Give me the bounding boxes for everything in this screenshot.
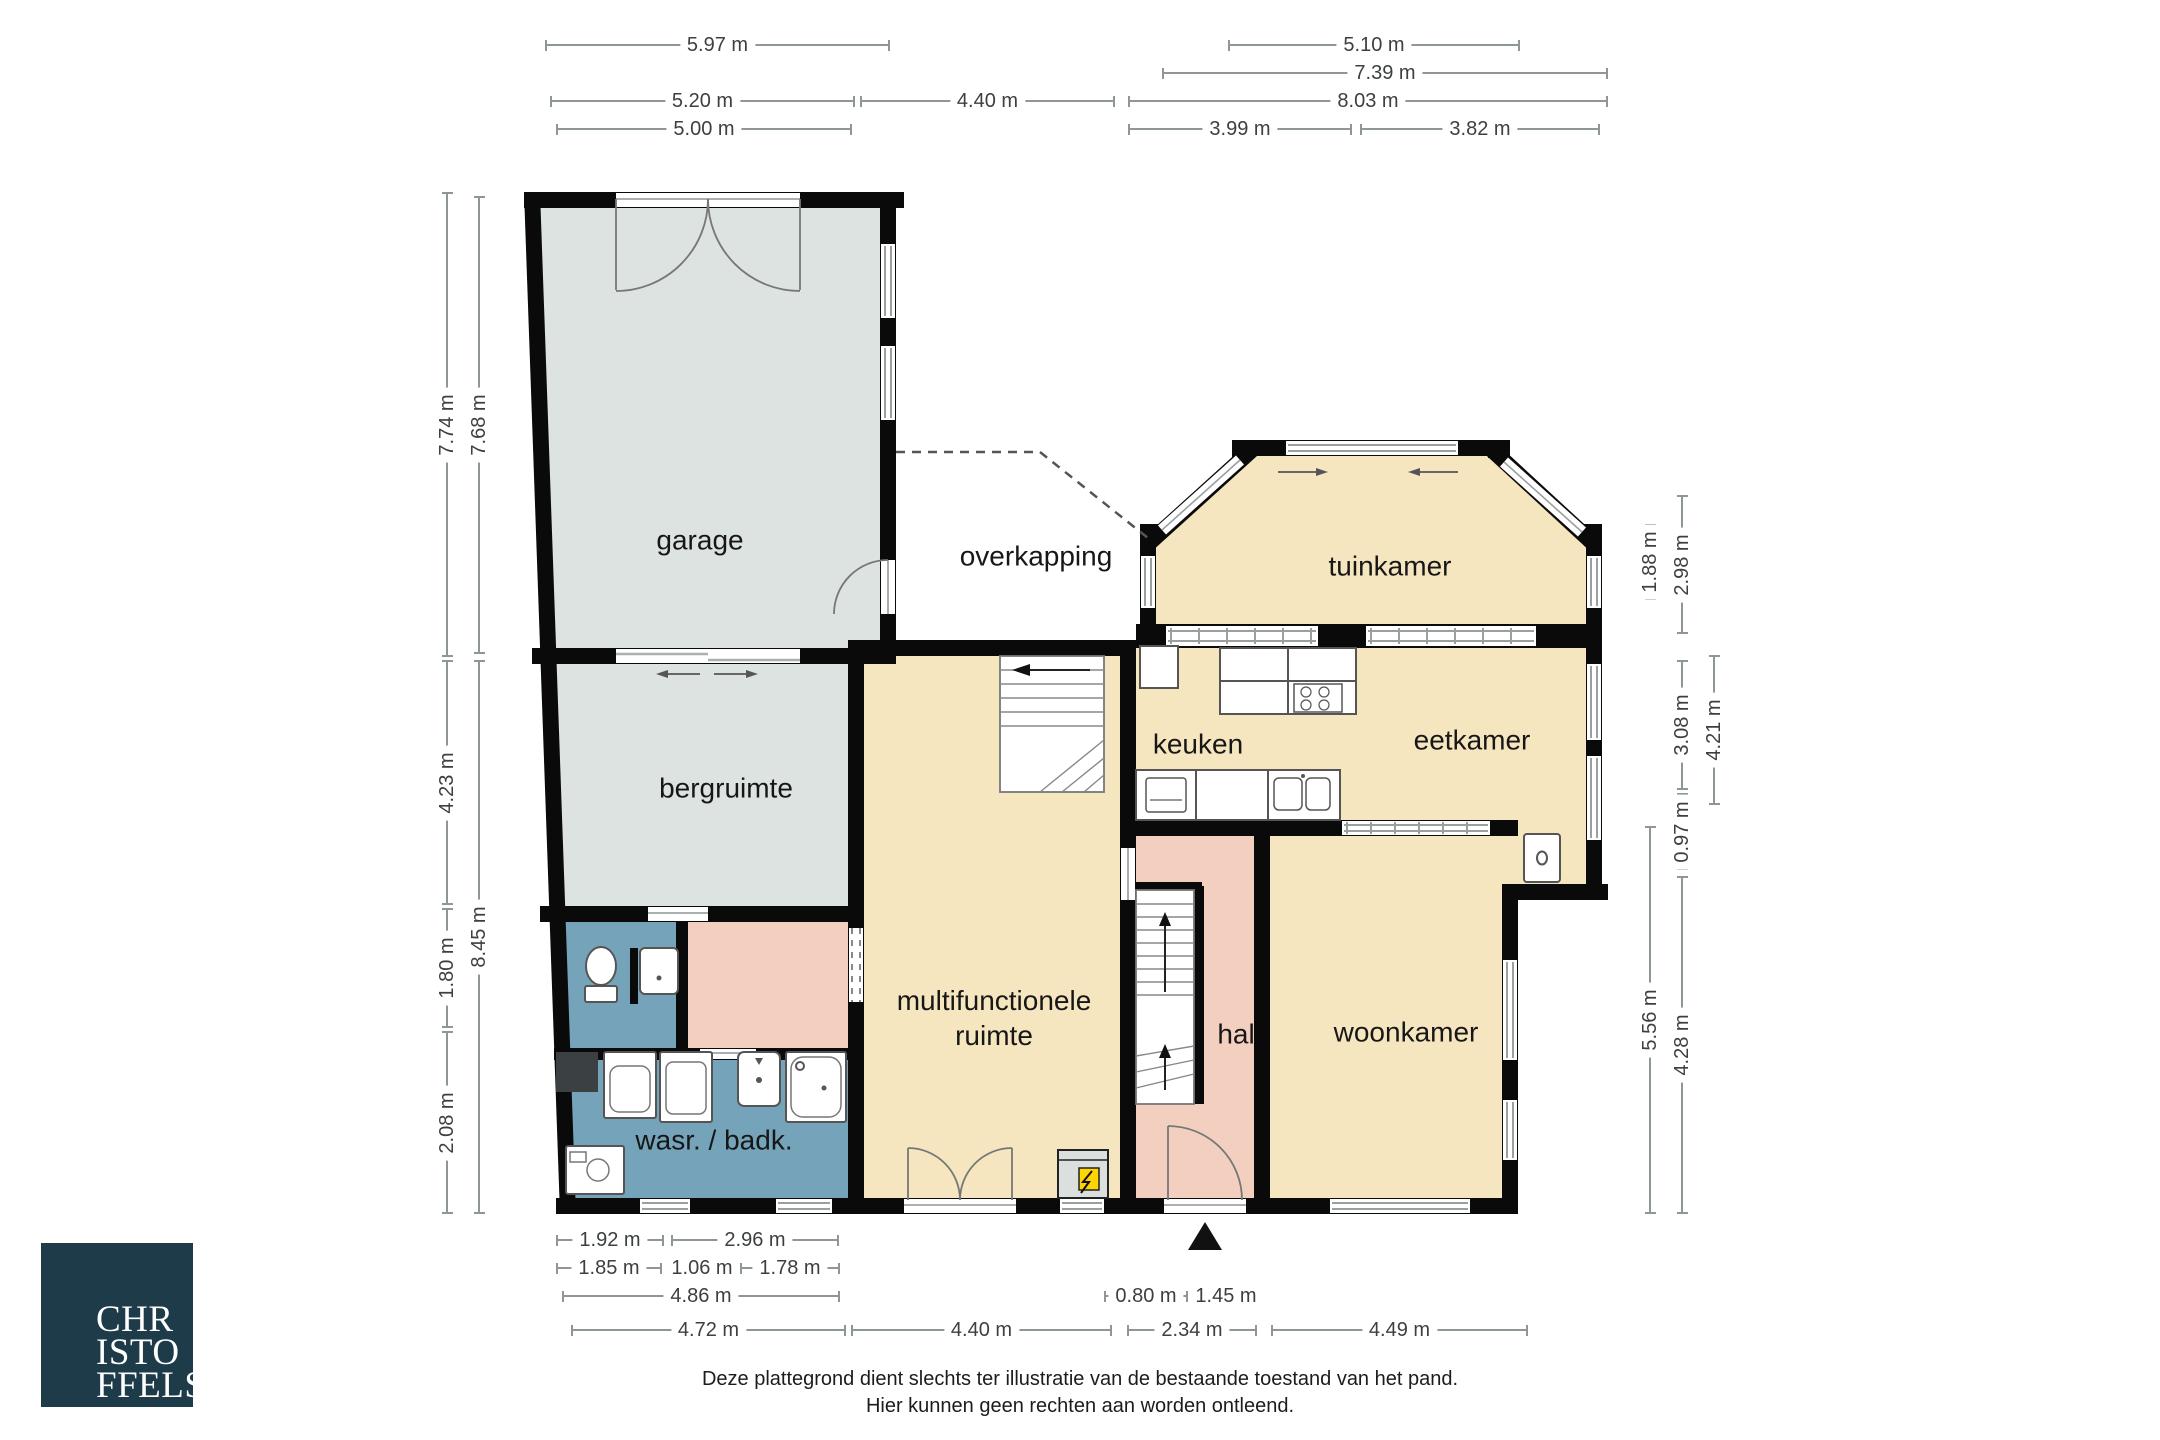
dimension-right: 3.08 m (1681, 660, 1683, 790)
dimension-bottom: 4.40 m (851, 1329, 1112, 1331)
laundry-sink-icon (566, 1146, 624, 1194)
dimension-label: 4.49 m (1362, 1319, 1437, 1341)
dimension-label: 0.97 m (1671, 794, 1693, 869)
dimension-label: 3.82 m (1442, 118, 1517, 140)
dimension-tick (562, 1291, 564, 1302)
utility-window (1060, 1199, 1104, 1213)
dimension-tick (838, 1263, 840, 1274)
dimension-tick (1518, 40, 1520, 51)
dimension-tick (1110, 1325, 1112, 1336)
dimension-label: 4.86 m (663, 1285, 738, 1307)
dimension-label: 4.21 m (1703, 692, 1725, 767)
dimension-top: 3.99 m (1128, 128, 1352, 130)
dimension-right: 4.21 m (1713, 655, 1715, 805)
dimension-tick (556, 1263, 558, 1274)
dimension-tick (1677, 660, 1688, 662)
dimension-label: 1.92 m (572, 1229, 647, 1251)
dimension-tick (1128, 96, 1130, 107)
dimension-top: 3.82 m (1360, 128, 1600, 130)
room-label-wasruimte-badkamer: wasr. / badk. (635, 1123, 792, 1158)
dimension-bottom: 0.80 m (1104, 1295, 1188, 1297)
dimension-left: 8.45 m (478, 660, 480, 1214)
dimension-tick (474, 660, 485, 662)
dimension-tick (442, 908, 453, 910)
dimension-label: 5.56 m (1639, 982, 1661, 1057)
living-room-window-east (1503, 960, 1517, 1060)
dimension-tick (888, 40, 890, 51)
dimension-tick (1645, 826, 1656, 828)
room-label-bergruimte: bergruimte (659, 771, 793, 806)
dimension-tick (474, 1212, 485, 1214)
disclaimer-line: Deze plattegrond dient slechts ter illus… (0, 1366, 2160, 1393)
floor-plan-drawing (0, 0, 2160, 1440)
dimension-label: 5.00 m (666, 118, 741, 140)
logo-line: FFELS (96, 1369, 205, 1402)
garden-room-window-right (1587, 556, 1601, 608)
multifunctional-hall-door (1121, 848, 1135, 900)
garage-window (881, 244, 895, 318)
dimension-label: 2.98 m (1671, 527, 1693, 602)
dimension-tick (442, 655, 453, 657)
dimension-tick (844, 1325, 846, 1336)
dimension-bottom: 2.96 m (671, 1239, 839, 1241)
dimension-tick (660, 1263, 662, 1274)
dimension-top: 7.39 m (1162, 72, 1608, 74)
dimension-tick (556, 124, 558, 135)
dimension-label: 5.20 m (665, 90, 740, 112)
dimension-top: 4.40 m (860, 100, 1115, 102)
dimension-tick (851, 1325, 853, 1336)
dimension-tick (853, 96, 855, 107)
dimension-label: 2.34 m (1154, 1319, 1229, 1341)
dimension-left: 4.23 m (446, 660, 448, 905)
dimension-top: 5.20 m (550, 100, 855, 102)
dimension-label: 8.45 m (468, 899, 490, 974)
toilet-icon (586, 947, 616, 985)
room-label-tuinkamer: tuinkamer (1329, 549, 1452, 584)
dimension-tick (671, 1235, 673, 1246)
dimension-tick (662, 1235, 664, 1246)
electricity-icon (1079, 1168, 1099, 1190)
dimension-bottom: 1.78 m (740, 1267, 840, 1269)
corridor-opening-dashed (849, 928, 863, 1002)
shower-icon (786, 1052, 846, 1122)
dimension-tick (1526, 1325, 1528, 1336)
dimension-right: 1.88 m (1649, 524, 1651, 600)
stairs-multifunctional-room (1000, 656, 1104, 792)
dimension-label: 7.74 m (436, 387, 458, 462)
stairs-hall (1136, 890, 1194, 1104)
entrance-arrow-icon (1188, 1222, 1222, 1250)
room-label-garage: garage (656, 523, 743, 558)
dimension-label: 7.68 m (468, 387, 490, 462)
dimension-label: 1.78 m (752, 1257, 827, 1279)
garden-room-window-top (1286, 441, 1458, 455)
dimension-tick (1606, 96, 1608, 107)
dimension-tick (1255, 1325, 1257, 1336)
dimension-right: 5.56 m (1649, 826, 1651, 1214)
garden-room-sliding-wall (1166, 626, 1318, 646)
garden-room-sliding-wall (1366, 626, 1536, 646)
dimension-top: 5.10 m (1228, 44, 1520, 46)
room-label-woonkamer: woonkamer (1334, 1015, 1479, 1050)
dimension-tick (1228, 40, 1230, 51)
dimension-label: 7.39 m (1347, 62, 1422, 84)
dimension-tick (740, 1263, 742, 1274)
dimension-top: 5.97 m (545, 44, 890, 46)
room-label-eetkamer: eetkamer (1414, 723, 1531, 758)
dimension-bottom: 1.45 m (1190, 1295, 1262, 1297)
hand-basin-icon (640, 948, 678, 994)
dimension-bottom: 1.92 m (556, 1239, 664, 1241)
dimension-right: 2.98 m (1681, 495, 1683, 634)
dimension-bottom: 4.86 m (562, 1295, 840, 1297)
dimension-tick (1677, 1212, 1688, 1214)
dimension-bottom: 1.85 m (556, 1267, 662, 1269)
dimension-label: 1.85 m (571, 1257, 646, 1279)
dimension-label: 3.99 m (1202, 118, 1277, 140)
dimension-tick (442, 1026, 453, 1028)
room-label-overkapping: overkapping (960, 539, 1113, 574)
dimension-label: 1.06 m (664, 1257, 739, 1279)
dimension-tick (1128, 124, 1130, 135)
dimension-label: 5.10 m (1336, 34, 1411, 56)
dimension-bottom: 2.34 m (1127, 1329, 1257, 1331)
meter-cupboard (1058, 1150, 1108, 1198)
dimension-tick (442, 903, 453, 905)
dimension-bottom: 4.49 m (1271, 1329, 1528, 1331)
dimension-right: 4.28 m (1681, 876, 1683, 1214)
company-logo: CHR ISTO FFELS (41, 1243, 193, 1407)
garage-floor (532, 208, 880, 648)
pellet-stove-icon (1524, 834, 1560, 882)
dimension-label: 1.88 m (1639, 524, 1661, 599)
floorplan-page: garageoverkappingtuinkamerkeukeneetkamer… (0, 0, 2160, 1440)
living-room-glass-doors (1342, 821, 1490, 835)
dimension-tick (442, 660, 453, 662)
dimension-top: 5.00 m (556, 128, 852, 130)
oven-icon (1146, 778, 1186, 812)
dimension-tick (1350, 124, 1352, 135)
garage-storage-sliding-door (616, 649, 800, 663)
dimension-label: 1.45 m (1188, 1285, 1263, 1307)
garden-room-window-left (1141, 556, 1155, 608)
dimension-label: 2.96 m (717, 1229, 792, 1251)
dimension-tick (1598, 124, 1600, 135)
dimension-label: 4.28 m (1671, 1007, 1693, 1082)
room-label-multifunctionele-ruimte: multifunctionele ruimte (897, 983, 1092, 1053)
dimension-label: 2.08 m (436, 1085, 458, 1160)
dimension-left: 7.68 m (478, 196, 480, 654)
dimension-bottom: 1.06 m (668, 1267, 736, 1269)
dimension-tick (1709, 655, 1720, 657)
room-label-keuken: keuken (1153, 727, 1243, 762)
kitchen-sink-icon (1274, 778, 1302, 810)
disclaimer: Deze plattegrond dient slechts ter illus… (0, 1366, 2160, 1420)
utility-box (556, 1052, 598, 1092)
company-logo-text: CHR ISTO FFELS (96, 1303, 205, 1402)
dimension-tick (1127, 1325, 1129, 1336)
dimension-label: 4.72 m (671, 1319, 746, 1341)
dimension-tick (1677, 495, 1688, 497)
kitchen-tall-unit (1140, 646, 1178, 688)
dimension-label: 3.08 m (1671, 687, 1693, 762)
dimension-label: 8.03 m (1330, 90, 1405, 112)
storage-door (648, 907, 708, 921)
dimension-tick (1677, 788, 1688, 790)
dimension-bottom: 4.72 m (571, 1329, 846, 1331)
dimension-label: 4.40 m (944, 1319, 1019, 1341)
garage-window (881, 346, 895, 420)
dimension-tick (1709, 803, 1720, 805)
dimension-tick (850, 124, 852, 135)
toilet-tank-icon (585, 986, 617, 1002)
dimension-left: 7.74 m (446, 192, 448, 657)
dimension-label: 4.40 m (950, 90, 1025, 112)
room-label-hal: hal (1217, 1017, 1254, 1052)
dimension-label: 4.23 m (436, 745, 458, 820)
dining-room-window-east (1587, 756, 1601, 840)
living-room-window-south (1330, 1199, 1470, 1213)
dimension-tick (837, 1235, 839, 1246)
dimension-right: 0.97 m (1681, 793, 1683, 870)
dimension-tick (442, 1212, 453, 1214)
corridor-floor (688, 922, 848, 1048)
dimension-tick (442, 1031, 453, 1033)
dimension-tick (571, 1325, 573, 1336)
overkapping-boundary (896, 452, 1148, 538)
dimension-tick (474, 652, 485, 654)
dimension-label: 0.80 m (1108, 1285, 1183, 1307)
dimension-tick (550, 96, 552, 107)
dimension-tick (1113, 96, 1115, 107)
dimension-tick (1645, 1212, 1656, 1214)
living-room-window-east (1503, 1100, 1517, 1160)
dimension-tick (1104, 1291, 1106, 1302)
dimension-top: 8.03 m (1128, 100, 1608, 102)
dimension-tick (545, 40, 547, 51)
dimension-tick (556, 1235, 558, 1246)
dimension-tick (1606, 68, 1608, 79)
bathroom-window (776, 1199, 832, 1213)
dimension-tick (838, 1291, 840, 1302)
dining-room-window-east (1587, 664, 1601, 740)
dimension-tick (860, 96, 862, 107)
bathroom-window (640, 1199, 690, 1213)
dimension-tick (1360, 124, 1362, 135)
dimension-left: 1.80 m (446, 908, 448, 1028)
dimension-left: 2.08 m (446, 1031, 448, 1214)
dimension-label: 1.80 m (436, 930, 458, 1005)
disclaimer-line: Hier kunnen geen rechten aan worden ontl… (0, 1393, 2160, 1420)
dimension-tick (1677, 632, 1688, 634)
dimension-label: 5.97 m (680, 34, 755, 56)
dimension-tick (474, 196, 485, 198)
dimension-tick (442, 192, 453, 194)
dimension-tick (1271, 1325, 1273, 1336)
dimension-tick (1162, 68, 1164, 79)
dimension-tick (1677, 876, 1688, 878)
